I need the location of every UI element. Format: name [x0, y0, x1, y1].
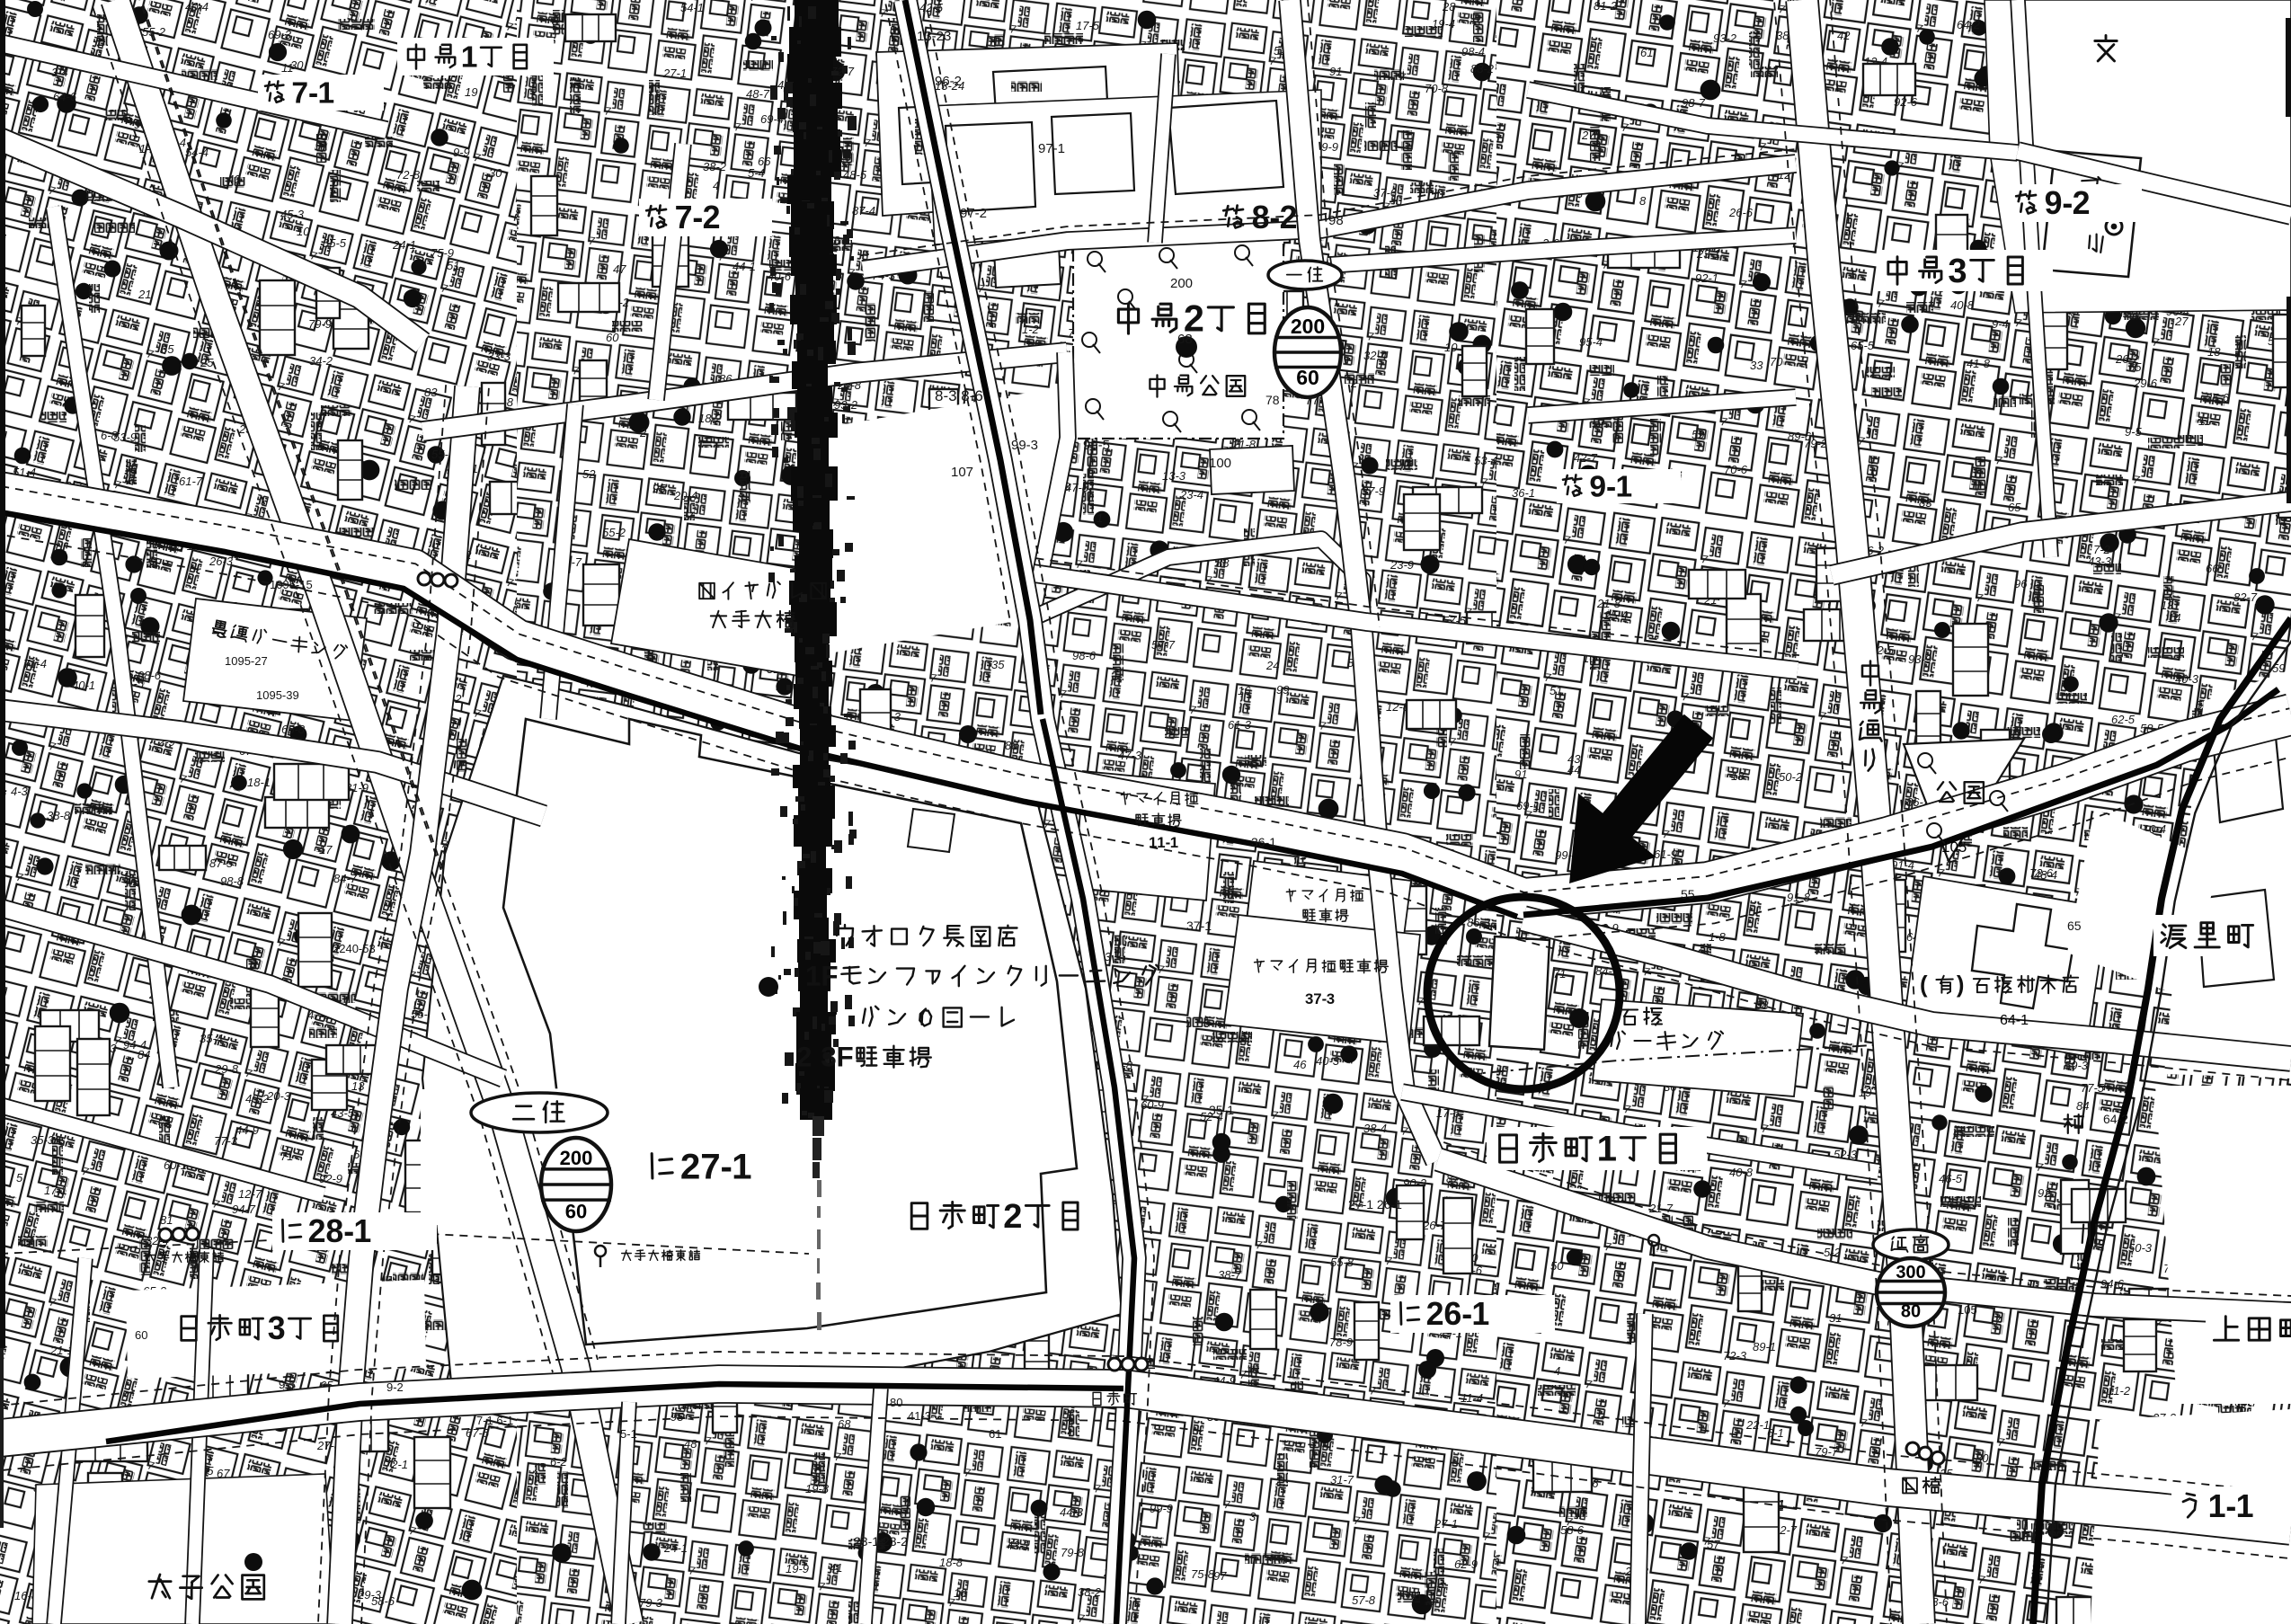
- svg-text:48-7: 48-7: [746, 87, 770, 101]
- svg-text:70-6: 70-6: [1724, 463, 1748, 476]
- svg-text:42: 42: [1837, 29, 1851, 42]
- svg-text:34-2: 34-2: [309, 354, 333, 368]
- svg-text:2: 2: [2073, 185, 2091, 221]
- svg-text:52: 52: [582, 467, 596, 481]
- svg-text:89-1: 89-1: [1753, 1340, 1776, 1353]
- svg-text:26-6: 26-6: [1728, 206, 1754, 219]
- svg-text:9: 9: [2045, 185, 2063, 221]
- svg-text:20-3: 20-3: [266, 1089, 291, 1103]
- svg-text:1: 1: [353, 1213, 371, 1249]
- svg-text:81: 81: [160, 1213, 173, 1227]
- svg-text:79-3: 79-3: [639, 1596, 663, 1610]
- svg-text:57-8: 57-8: [1352, 1593, 1376, 1607]
- svg-text:72-3: 72-3: [1723, 1349, 1747, 1362]
- svg-text:29-8: 29-8: [214, 1062, 239, 1076]
- svg-text:70-8: 70-8: [1425, 82, 1449, 95]
- svg-text:80: 80: [890, 1396, 902, 1409]
- svg-text:18-2: 18-2: [698, 412, 723, 425]
- svg-text:3: 3: [821, 1042, 836, 1073]
- svg-text:2: 2: [680, 1147, 700, 1187]
- svg-text:65-8: 65-8: [281, 723, 306, 736]
- svg-text:72-1: 72-1: [385, 1458, 408, 1471]
- svg-text:1095-27: 1095-27: [225, 654, 268, 668]
- svg-text:71: 71: [1553, 967, 1566, 981]
- svg-text:51: 51: [447, 259, 459, 272]
- svg-text:9: 9: [1589, 470, 1606, 503]
- svg-text:17: 17: [319, 843, 333, 856]
- svg-text:33-3: 33-3: [487, 350, 511, 363]
- svg-text:-: -: [343, 1213, 354, 1249]
- svg-text:31: 31: [1829, 1311, 1842, 1325]
- svg-text:85-5: 85-5: [323, 236, 347, 250]
- svg-text:1: 1: [2236, 1488, 2254, 1524]
- svg-text:64-2: 64-2: [1957, 18, 1981, 31]
- svg-text:18-1: 18-1: [247, 776, 271, 789]
- svg-text:65: 65: [2008, 501, 2021, 514]
- svg-text:24-1: 24-1: [392, 238, 416, 252]
- svg-text:50-2: 50-2: [1779, 770, 1803, 784]
- svg-text:95-4: 95-4: [1579, 335, 1603, 349]
- svg-text:4: 4: [1554, 1364, 1560, 1378]
- svg-text:75-9: 75-9: [431, 246, 454, 260]
- svg-text:83: 83: [424, 386, 438, 399]
- svg-text:-: -: [1461, 1296, 1472, 1332]
- svg-text:88: 88: [1005, 739, 1018, 752]
- svg-text:44-1: 44-1: [733, 260, 756, 273]
- svg-text:): ): [1957, 972, 1965, 998]
- svg-text:1: 1: [1157, 834, 1165, 851]
- svg-text:30: 30: [489, 166, 502, 180]
- svg-text:75-8: 75-8: [1191, 1567, 1215, 1581]
- svg-text:2: 2: [639, 426, 647, 439]
- svg-text:83: 83: [1919, 496, 1932, 510]
- svg-text:98-8: 98-8: [220, 874, 244, 888]
- svg-text:77-5: 77-5: [2081, 1081, 2105, 1095]
- svg-text:91: 91: [1329, 65, 1342, 78]
- svg-text:2240-53: 2240-53: [333, 942, 376, 955]
- svg-text:95: 95: [670, 1410, 684, 1424]
- svg-text:96: 96: [2014, 577, 2028, 590]
- svg-text:58-6: 58-6: [1560, 1523, 1585, 1537]
- svg-text:200: 200: [1291, 315, 1325, 338]
- svg-text:35-4: 35-4: [200, 1032, 223, 1045]
- svg-text:41-3: 41-3: [908, 1409, 931, 1423]
- svg-text:38: 38: [1776, 29, 1789, 42]
- svg-text:71-4: 71-4: [23, 657, 47, 670]
- svg-text:F: F: [837, 1042, 854, 1073]
- svg-text:27-1: 27-1: [662, 67, 687, 80]
- svg-text:77-3: 77-3: [214, 1134, 238, 1148]
- svg-text:13-3: 13-3: [1162, 469, 1186, 483]
- svg-text:38-8: 38-8: [47, 809, 71, 822]
- svg-text:70: 70: [1770, 355, 1783, 368]
- svg-text:84-7: 84-7: [333, 872, 358, 885]
- svg-text:45-3: 45-3: [280, 208, 305, 221]
- svg-text:8: 8: [1639, 194, 1647, 208]
- svg-text:73-6: 73-6: [2029, 866, 2054, 880]
- svg-text:21: 21: [138, 288, 151, 301]
- svg-text:13: 13: [2161, 599, 2174, 612]
- svg-text:96-2: 96-2: [935, 74, 962, 89]
- svg-text:-: -: [2062, 185, 2073, 221]
- svg-text:61: 61: [989, 1427, 1001, 1441]
- svg-text:37-6: 37-6: [1373, 186, 1398, 200]
- svg-text:37-1: 37-1: [1186, 918, 1212, 933]
- svg-text:3: 3: [1948, 253, 1967, 290]
- svg-text:64-6: 64-6: [53, 90, 77, 103]
- svg-text:2: 2: [1426, 1296, 1444, 1332]
- svg-text:1: 1: [805, 961, 821, 992]
- svg-text:42-7: 42-7: [1574, 451, 1598, 465]
- svg-text:9-5: 9-5: [279, 1378, 296, 1391]
- svg-text:10: 10: [1444, 341, 1458, 354]
- svg-text:41: 41: [830, 1561, 842, 1575]
- svg-text:43-1: 43-1: [1007, 1539, 1030, 1552]
- svg-text:86-3: 86-3: [1467, 916, 1491, 929]
- svg-text:1: 1: [1097, 511, 1103, 525]
- svg-text:1: 1: [1616, 470, 1633, 503]
- svg-text:7: 7: [291, 76, 308, 110]
- svg-text:35-3: 35-3: [31, 1133, 55, 1147]
- svg-text:21-7: 21-7: [1648, 1202, 1674, 1215]
- svg-text:93-9: 93-9: [1908, 652, 1931, 666]
- svg-text:87-4: 87-4: [852, 204, 875, 217]
- svg-text:95: 95: [653, 482, 666, 495]
- svg-text:40-3: 40-3: [1316, 1054, 1340, 1068]
- svg-text:92: 92: [2038, 1186, 2051, 1200]
- svg-text:40-4: 40-4: [185, 0, 209, 13]
- svg-text:-: -: [1269, 200, 1280, 235]
- svg-text:32-4: 32-4: [1363, 349, 1387, 362]
- svg-text:60: 60: [135, 1328, 147, 1342]
- svg-text:30: 30: [290, 58, 304, 72]
- svg-text:38-7: 38-7: [1218, 1268, 1242, 1282]
- svg-text:61-3: 61-3: [1228, 718, 1252, 732]
- svg-text:27-1: 27-1: [1434, 1517, 1458, 1531]
- svg-text:53-4: 53-4: [1474, 454, 1497, 467]
- svg-text:66: 66: [2206, 562, 2219, 575]
- svg-text:41-8: 41-8: [1967, 357, 1991, 370]
- svg-text:7-1 6-1: 7-1 6-1: [476, 1414, 513, 1427]
- svg-text:36-1: 36-1: [1512, 486, 1535, 500]
- svg-text:97-2: 97-2: [960, 206, 987, 221]
- svg-text:79-2: 79-2: [1804, 437, 1828, 450]
- svg-text:55-2: 55-2: [602, 526, 626, 539]
- svg-text:68: 68: [838, 1417, 851, 1431]
- svg-text:2: 2: [308, 1213, 326, 1249]
- svg-text:14: 14: [2168, 611, 2180, 625]
- svg-text:38-2: 38-2: [703, 160, 727, 173]
- svg-text:31-7: 31-7: [1330, 1473, 1354, 1486]
- svg-text:6-1: 6-1: [1767, 1426, 1784, 1440]
- svg-text:77: 77: [1305, 393, 1319, 407]
- svg-text:64-2: 64-2: [2103, 1112, 2128, 1126]
- svg-text:38-4: 38-4: [1363, 1122, 1387, 1135]
- svg-text:69-1: 69-1: [1516, 799, 1540, 812]
- svg-text:9-4: 9-4: [1992, 317, 2009, 331]
- svg-text:2: 2: [703, 200, 721, 235]
- svg-text:55-8: 55-8: [1330, 1256, 1354, 1269]
- svg-text:78-9: 78-9: [1329, 1336, 1353, 1349]
- svg-text:1: 1: [732, 1147, 751, 1187]
- svg-text:-: -: [692, 200, 703, 235]
- svg-text:38-2: 38-2: [1078, 1585, 1102, 1599]
- svg-text:61-9: 61-9: [1654, 847, 1677, 861]
- svg-text:48: 48: [684, 1437, 697, 1451]
- svg-text:300: 300: [1896, 1263, 1925, 1282]
- svg-text:7: 7: [1313, 990, 1321, 1007]
- svg-text:50: 50: [1550, 1259, 1564, 1273]
- svg-text:13-23: 13-23: [917, 29, 951, 44]
- svg-text:60: 60: [606, 331, 619, 344]
- svg-text:61: 61: [1640, 46, 1653, 59]
- svg-text:10: 10: [297, 225, 310, 238]
- svg-text:65: 65: [161, 342, 174, 356]
- svg-text:62-9: 62-9: [1454, 1557, 1478, 1571]
- svg-text:11-2: 11-2: [2108, 1384, 2131, 1398]
- svg-text:13: 13: [351, 1079, 365, 1093]
- svg-text:49-2: 49-2: [245, 1092, 270, 1105]
- svg-text:5-2: 5-2: [1824, 1246, 1842, 1259]
- svg-text:60-9: 60-9: [1141, 1098, 1164, 1112]
- svg-text:53-9: 53-9: [113, 430, 137, 444]
- svg-text:88-2: 88-2: [1470, 62, 1495, 75]
- svg-text:51: 51: [1550, 684, 1562, 697]
- svg-text:100: 100: [1209, 456, 1231, 471]
- svg-text:24: 24: [1265, 659, 1279, 672]
- svg-text:1095-15: 1095-15: [270, 578, 313, 591]
- svg-text:1: 1: [1149, 834, 1157, 851]
- svg-text:3: 3: [1249, 1510, 1256, 1523]
- svg-text:3: 3: [1327, 990, 1335, 1007]
- svg-text:35: 35: [991, 658, 1005, 671]
- svg-text:59: 59: [1692, 428, 1704, 441]
- svg-text:44-9: 44-9: [235, 1123, 259, 1137]
- svg-text:92-6: 92-6: [1894, 95, 1918, 109]
- svg-text:1: 1: [318, 76, 335, 110]
- svg-text:2: 2: [796, 1042, 812, 1073]
- svg-text:40-3: 40-3: [2175, 672, 2199, 686]
- svg-text:-: -: [2225, 1488, 2236, 1524]
- svg-text:98-6: 98-6: [1072, 649, 1097, 662]
- svg-text:1095-39: 1095-39: [256, 688, 299, 702]
- svg-text:78: 78: [1265, 393, 1280, 407]
- svg-text:1: 1: [2208, 1488, 2226, 1524]
- svg-text:48-5: 48-5: [843, 168, 867, 182]
- svg-text:81-2: 81-2: [1594, 0, 1618, 13]
- svg-text:97: 97: [1213, 1569, 1227, 1583]
- svg-text:-: -: [1606, 470, 1616, 503]
- svg-text:99-5: 99-5: [1083, 438, 1110, 453]
- svg-text:12-7: 12-7: [238, 1187, 262, 1201]
- svg-text:82-7: 82-7: [2233, 590, 2258, 604]
- svg-text:94-7: 94-7: [232, 1202, 256, 1216]
- svg-text:16: 16: [1238, 684, 1251, 697]
- svg-text:99-9: 99-9: [1150, 1502, 1173, 1515]
- svg-text:40-1: 40-1: [72, 679, 95, 692]
- svg-text:19-9: 19-9: [786, 1562, 809, 1575]
- svg-text:71: 71: [280, 1149, 293, 1163]
- svg-text:-: -: [721, 1147, 733, 1187]
- svg-text:64-1: 64-1: [2000, 1013, 2029, 1028]
- svg-text:18: 18: [2207, 345, 2221, 359]
- svg-text:57: 57: [1707, 1538, 1720, 1551]
- svg-text:17-5: 17-5: [1076, 19, 1100, 32]
- svg-text:19: 19: [465, 85, 477, 99]
- svg-text:44-3: 44-3: [1060, 1505, 1084, 1519]
- svg-text:8-3 8-6: 8-3 8-6: [935, 387, 983, 404]
- svg-text:60: 60: [1296, 366, 1319, 389]
- svg-text:2: 2: [1280, 200, 1298, 235]
- svg-text:105: 105: [1958, 1303, 1977, 1317]
- svg-text:61-7: 61-7: [179, 475, 203, 488]
- svg-text:79-8: 79-8: [1061, 1546, 1085, 1559]
- svg-text:9-2: 9-2: [386, 1380, 404, 1394]
- svg-text:6: 6: [1443, 1296, 1461, 1332]
- svg-text:7: 7: [1994, 1314, 2002, 1327]
- svg-text:68: 68: [1177, 332, 1193, 347]
- svg-text:54-1: 54-1: [680, 1, 704, 14]
- svg-text:25-6: 25-6: [2205, 391, 2230, 404]
- svg-text:98: 98: [1328, 213, 1344, 228]
- svg-text:7: 7: [700, 1147, 720, 1187]
- svg-text:1-2: 1-2: [1022, 323, 1040, 336]
- svg-text:47: 47: [613, 262, 626, 276]
- svg-text:7-2: 7-2: [2093, 543, 2111, 556]
- svg-text:72-8: 72-8: [396, 168, 421, 182]
- svg-text:99: 99: [1276, 683, 1289, 697]
- svg-text:5: 5: [16, 1171, 23, 1185]
- svg-text:5-1: 5-1: [620, 1427, 637, 1441]
- svg-text:3: 3: [1305, 990, 1313, 1007]
- svg-text:58-6: 58-6: [371, 1594, 395, 1608]
- svg-text:3: 3: [268, 1310, 286, 1346]
- svg-text:4-3: 4-3: [11, 785, 29, 798]
- svg-text:40-8: 40-8: [1950, 298, 1975, 312]
- svg-text:23-1 23-2: 23-1 23-2: [854, 1534, 908, 1549]
- svg-text:60: 60: [565, 1200, 587, 1222]
- svg-text:17-1: 17-1: [44, 1184, 67, 1197]
- svg-text:65: 65: [2128, 360, 2142, 374]
- svg-text:1-8: 1-8: [1709, 930, 1727, 944]
- svg-text:23-9: 23-9: [1390, 558, 1414, 572]
- svg-text:42-5: 42-5: [919, 1, 944, 14]
- svg-text:8: 8: [325, 1213, 343, 1249]
- svg-text:57-7: 57-7: [1151, 638, 1176, 652]
- svg-text:1: 1: [1471, 1296, 1489, 1332]
- svg-text:69-3: 69-3: [268, 28, 292, 41]
- svg-text:18-8: 18-8: [939, 1556, 963, 1569]
- svg-text:11: 11: [2198, 414, 2211, 428]
- svg-text:98-4: 98-4: [1461, 45, 1485, 58]
- svg-text:65-5: 65-5: [1851, 339, 1875, 352]
- svg-text:46: 46: [1293, 1058, 1307, 1071]
- svg-text:200: 200: [560, 1147, 593, 1169]
- svg-text:33: 33: [1750, 359, 1763, 372]
- svg-text:47-3: 47-3: [1118, 749, 1142, 762]
- svg-text:4: 4: [713, 179, 719, 192]
- svg-text:(: (: [1920, 972, 1928, 998]
- svg-text:107: 107: [951, 465, 973, 480]
- svg-text:23-4: 23-4: [1179, 488, 1203, 501]
- svg-text:97-1: 97-1: [1038, 141, 1065, 156]
- svg-text:25: 25: [200, 356, 214, 369]
- svg-text:9-9: 9-9: [453, 146, 470, 159]
- svg-text:40-8: 40-8: [1729, 1166, 1754, 1179]
- svg-text:1: 1: [1597, 1129, 1617, 1169]
- svg-text:29-6: 29-6: [2133, 377, 2158, 390]
- svg-text:99-3: 99-3: [1011, 438, 1038, 453]
- svg-text:8: 8: [1252, 200, 1270, 235]
- svg-text:1: 1: [1170, 834, 1178, 851]
- svg-text:2: 2: [1003, 1198, 1022, 1236]
- svg-text:55: 55: [1681, 887, 1695, 901]
- svg-text:9-5: 9-5: [2125, 425, 2143, 439]
- svg-text:22-1: 22-1: [1745, 1418, 1770, 1432]
- svg-text:105: 105: [1941, 839, 1967, 856]
- svg-text:28: 28: [1442, 0, 1456, 13]
- svg-text:7: 7: [675, 200, 693, 235]
- svg-text:27-1 26-1: 27-1 26-1: [1348, 1197, 1402, 1211]
- svg-text:87-5: 87-5: [209, 856, 234, 870]
- svg-text:92-9: 92-9: [319, 1172, 342, 1185]
- svg-text:11-4: 11-4: [1461, 1391, 1483, 1405]
- svg-text:92-1: 92-1: [1695, 271, 1718, 285]
- svg-text:50-3: 50-3: [2128, 1241, 2153, 1255]
- svg-text:18: 18: [1731, 769, 1745, 783]
- svg-text:98-7: 98-7: [1682, 96, 1706, 110]
- svg-text:91: 91: [1514, 768, 1527, 781]
- svg-text:F: F: [821, 961, 838, 992]
- svg-text:93-2: 93-2: [1713, 31, 1737, 45]
- svg-text:35-1: 35-1: [1209, 1103, 1234, 1117]
- svg-text:80: 80: [1901, 1301, 1921, 1321]
- svg-text:43: 43: [1567, 752, 1581, 766]
- svg-text:84: 84: [138, 1048, 150, 1061]
- svg-text:10: 10: [954, 1586, 967, 1600]
- svg-text:200: 200: [1170, 276, 1193, 291]
- svg-text:65: 65: [2067, 918, 2082, 933]
- svg-text:1: 1: [461, 40, 478, 74]
- svg-text:62-5: 62-5: [2111, 713, 2136, 726]
- svg-text:37-9: 37-9: [1362, 484, 1385, 498]
- svg-text:6-2: 6-2: [550, 1455, 568, 1469]
- svg-text:36-1: 36-1: [1251, 835, 1276, 849]
- svg-text:84: 84: [2076, 1099, 2089, 1113]
- svg-text:-: -: [308, 76, 318, 110]
- svg-text:46-5: 46-5: [1939, 1172, 1963, 1185]
- svg-text:5-4: 5-4: [748, 166, 765, 180]
- svg-text:24-1: 24-1: [663, 1541, 688, 1555]
